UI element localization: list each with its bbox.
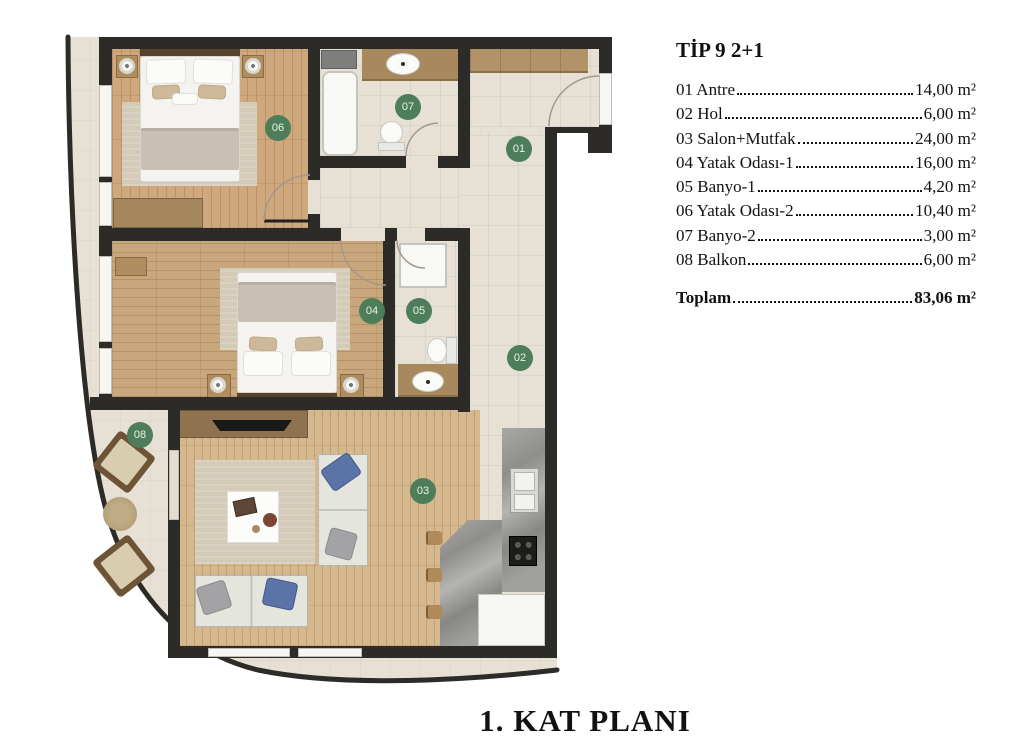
bedroom2-door-opening — [308, 180, 320, 214]
bedroom2-pillow — [193, 58, 234, 84]
window — [99, 85, 112, 177]
bathroom1-sink — [412, 371, 444, 392]
wall-right — [545, 133, 557, 658]
stove — [509, 536, 537, 566]
dot-leader — [737, 93, 913, 95]
bedroom2-cushion — [172, 93, 198, 105]
bathtub — [322, 71, 358, 156]
kitchen-sink-basin — [514, 472, 535, 491]
toilet-tank — [446, 337, 457, 364]
legend-title: TİP 9 2+1 — [676, 38, 976, 63]
entry-closet — [470, 49, 588, 73]
dot-leader — [798, 142, 914, 144]
room-label: 07 Banyo-2 — [676, 226, 756, 246]
bathroom2-sink — [386, 53, 420, 75]
wall-bath2-bottom — [320, 156, 470, 168]
legend-row: 04 Yatak Odası-116,00 m² — [676, 153, 976, 177]
bedroom2-pillow — [146, 58, 187, 84]
toilet-tank — [378, 142, 405, 151]
tv — [212, 420, 292, 431]
bedroom1-lamp — [210, 377, 226, 393]
washing-machine — [321, 50, 357, 69]
room-badge-01: 01 — [506, 136, 532, 162]
room-area: 16,00 m² — [915, 153, 976, 173]
legend: TİP 9 2+1 01 Antre14,00 m² 02 Hol6,00 m²… — [676, 38, 976, 312]
dot-leader — [725, 117, 922, 119]
bedroom2-dresser — [113, 198, 203, 228]
wall-top — [100, 37, 612, 49]
wall-bath2-entry — [458, 37, 470, 168]
bedroom2-cushion — [198, 84, 227, 99]
window — [99, 348, 112, 394]
bedroom1-pillow — [243, 351, 283, 376]
corridor-floor — [320, 168, 458, 228]
room-area: 24,00 m² — [915, 129, 976, 149]
bedroom2-lamp — [245, 58, 261, 74]
bedroom2-headboard — [140, 49, 240, 56]
window — [208, 648, 290, 657]
toilet-bowl — [380, 121, 403, 144]
dot-leader — [796, 166, 914, 168]
room-area: 6,00 m² — [924, 104, 976, 124]
toilet-bowl — [427, 338, 447, 363]
room-area: 3,00 m² — [924, 226, 976, 246]
plan-caption: 1. KAT PLANI — [380, 703, 790, 739]
drain — [401, 62, 405, 66]
bedroom1-blanket — [238, 282, 336, 322]
dot-leader — [733, 301, 912, 303]
table-decor — [252, 525, 260, 533]
room-area: 6,00 m² — [924, 250, 976, 270]
window — [298, 648, 362, 657]
legend-row: 05 Banyo-14,20 m² — [676, 177, 976, 201]
balcony-table — [103, 497, 137, 531]
room-area: 10,40 m² — [915, 201, 976, 221]
dot-leader — [748, 263, 921, 265]
dot-leader — [758, 239, 922, 241]
total-label: Toplam — [676, 288, 731, 308]
room-label: 06 Yatak Odası-2 — [676, 201, 794, 221]
room-badge-03: 03 — [410, 478, 436, 504]
kitchen-cabinet — [478, 594, 545, 646]
wall-bath1-left — [383, 240, 395, 400]
room-badge-06: 06 — [265, 115, 291, 141]
room-area: 14,00 m² — [915, 80, 976, 100]
entry-door-opening — [599, 73, 612, 125]
room-label: 01 Antre — [676, 80, 735, 100]
room-label: 05 Banyo-1 — [676, 177, 756, 197]
bar-stool — [426, 605, 442, 619]
bedroom1-pillow — [291, 351, 331, 376]
room-badge-08: 08 — [127, 422, 153, 448]
bar-stool — [426, 531, 442, 545]
legend-row: 01 Antre14,00 m² — [676, 80, 976, 104]
drain — [426, 380, 430, 384]
wall-balcony-living — [168, 407, 180, 658]
legend-row: 07 Banyo-23,00 m² — [676, 226, 976, 250]
legend-total-row: Toplam83,06 m² — [676, 288, 976, 312]
balcony-door-opening — [169, 450, 179, 520]
dot-leader — [796, 214, 914, 216]
bedroom1-cushion — [249, 336, 278, 351]
window — [99, 182, 112, 226]
bar-stool — [426, 568, 442, 582]
room-label: 03 Salon+Mutfak — [676, 129, 796, 149]
room-area: 4,20 m² — [924, 177, 976, 197]
bath2-door-opening — [406, 156, 438, 168]
total-area: 83,06 m² — [914, 288, 976, 308]
room-badge-07: 07 — [395, 94, 421, 120]
legend-row: 03 Salon+Mutfak24,00 m² — [676, 129, 976, 153]
wall-hall-vertical — [458, 228, 470, 412]
room-label: 08 Balkon — [676, 250, 746, 270]
room-label: 02 Hol — [676, 104, 723, 124]
bedroom1-cushion — [295, 336, 324, 351]
room-badge-04: 04 — [359, 298, 385, 324]
window — [99, 256, 112, 342]
room-badge-05: 05 — [406, 298, 432, 324]
kitchen-sink-basin — [514, 494, 535, 510]
legend-row: 02 Hol6,00 m² — [676, 104, 976, 128]
bedroom1-chair — [115, 257, 147, 276]
legend-row: 08 Balkon6,00 m² — [676, 250, 976, 274]
room-label: 04 Yatak Odası-1 — [676, 153, 794, 173]
wall-bedroom1-bottom — [90, 397, 458, 410]
dot-leader — [758, 190, 922, 192]
bedroom1-door-opening — [341, 228, 385, 241]
table-decor-bowl — [263, 513, 277, 527]
legend-row: 06 Yatak Odası-210,40 m² — [676, 201, 976, 225]
shower — [399, 243, 447, 288]
bedroom2-lamp — [119, 58, 135, 74]
floor-plan-page: 01 02 03 04 05 06 07 08 TİP 9 2+1 01 Ant… — [0, 0, 1024, 751]
bedroom1-lamp — [343, 377, 359, 393]
bath1-door-opening — [397, 228, 425, 241]
bedroom2-blanket — [141, 128, 239, 170]
room-badge-02: 02 — [507, 345, 533, 371]
